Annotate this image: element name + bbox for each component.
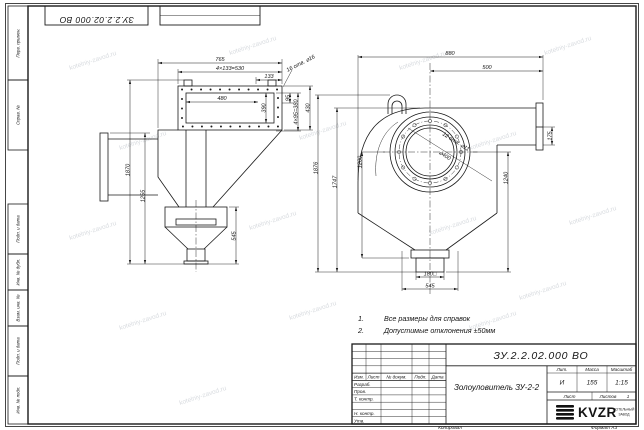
scale-label: Масштаб	[611, 367, 633, 372]
right-view-dimensions: 880 500 1876 1747 1200 1240 175 12 отв. …	[314, 51, 556, 291]
dim-390: 390	[262, 102, 268, 112]
col-docum: № докум.	[386, 375, 406, 380]
left-view-dimensions: 765 4×133=530 133 480 390 16 отв. ⌀16 95…	[110, 54, 317, 264]
dim-1255: 1255	[141, 189, 147, 202]
top-stamp-doc-number: ЗУ.2.2.02.000 ВО	[59, 15, 134, 25]
dim-4x95: 4×95=380	[294, 99, 300, 125]
watermark-text: kotelniy-zavod.ru	[568, 205, 617, 227]
watermark-text: kotelniy-zavod.ru	[518, 280, 567, 302]
company-line2: ЗАВОД	[618, 413, 630, 417]
dim-480: 480	[217, 96, 227, 102]
copied-label: Копировал	[438, 425, 462, 430]
note-1-text: Все размеры для справок	[384, 314, 471, 323]
sheets-label: Листов	[599, 394, 617, 399]
dim-545-left: 545	[232, 230, 238, 240]
lifting-hook	[388, 95, 406, 114]
dim-545-right: 545	[425, 284, 435, 290]
liter-value: И	[560, 380, 565, 387]
dim-880: 880	[445, 51, 455, 57]
dim-133: 133	[264, 74, 274, 80]
right-view-outline	[358, 63, 543, 294]
liter-label: Лит.	[556, 367, 568, 372]
logo-text: KVZR	[578, 405, 617, 420]
row-prov: Пров.	[354, 389, 366, 394]
margin-label-podp-data-2: Подп. и дата	[16, 337, 21, 365]
row-n-kontr: Н. контр.	[354, 411, 375, 416]
margin-labels: Перв. примен. Справ. № Подп. и дата Инв.…	[16, 28, 21, 413]
margin-label-inv-dubl: Инв. № дубл.	[16, 258, 21, 285]
dim-1240: 1240	[504, 171, 510, 184]
outlet-duct-flange	[536, 103, 543, 150]
row-razrab: Разраб.	[354, 382, 371, 387]
scroll-inner-curve	[376, 122, 398, 176]
watermark-text: kotelniy-zavod.ru	[468, 130, 517, 152]
dim-175: 175	[548, 130, 554, 140]
scale-value: 1:15	[615, 380, 628, 387]
watermark-text: kotelniy-zavod.ru	[543, 35, 592, 57]
watermark-text: kotelniy-zavod.ru	[118, 310, 167, 332]
sheet-frame	[6, 4, 639, 427]
margin-label-podp-data-1: Подп. и дата	[16, 215, 21, 243]
side-flange	[100, 133, 108, 201]
mass-value: 155	[587, 380, 598, 387]
watermark-text: kotelniy-zavod.ru	[298, 120, 347, 142]
company-line1: КОТЕЛЬНЫЙ	[614, 408, 635, 412]
dim-430: 430	[306, 102, 312, 112]
margin-label-sprav-no: Справ. №	[16, 105, 21, 125]
margin-label-inv-podl: Инв. № подл.	[16, 386, 21, 413]
col-izm: Изм.	[354, 375, 364, 380]
title-block: Изм. Лист № докум. Подп. Дата Разраб. Пр…	[352, 344, 636, 424]
mass-label: Масса	[585, 367, 599, 372]
right-view: 880 500 1876 1747 1200 1240 175 12 отв. …	[314, 51, 556, 294]
format-label: Формат А3	[591, 425, 618, 430]
logo-bars-icon	[556, 405, 574, 408]
col-data: Дата	[430, 375, 444, 380]
note-1-number: 1.	[358, 314, 364, 323]
margin-label-vzam-inv: Взам. инв. №	[16, 294, 21, 321]
watermark-text: kotelniy-zavod.ru	[248, 210, 297, 232]
col-list: Лист	[367, 375, 380, 380]
margin-label-perv-primen: Перв. примен.	[16, 28, 21, 57]
footer: Копировал Формат А3	[438, 425, 617, 430]
watermark-text: kotelniy-zavod.ru	[178, 385, 227, 407]
watermark-text: kotelniy-zavod.ru	[288, 300, 337, 322]
dim-4x133: 4×133=530	[216, 66, 245, 72]
watermark-text: kotelniy-zavod.ru	[118, 130, 167, 152]
left-view: 765 4×133=530 133 480 390 16 отв. ⌀16 95…	[100, 54, 317, 272]
row-t-kontr: Т. контр.	[354, 397, 374, 402]
dim-1876: 1876	[314, 161, 320, 174]
company-logo: KVZR КОТЕЛЬНЫЙ ЗАВОД	[556, 405, 635, 420]
dim-1200: 1200	[358, 155, 364, 168]
dim-1870: 1870	[126, 163, 132, 176]
dim-180: 180□	[424, 272, 437, 278]
top-stamp: ЗУ.2.2.02.000 ВО	[45, 6, 260, 25]
sheet-label: Лист	[563, 394, 576, 399]
watermark-text: kotelniy-zavod.ru	[228, 35, 277, 57]
note-2-number: 2.	[357, 326, 364, 335]
doc-title: Золоуловитель ЗУ-2-2	[454, 383, 540, 392]
note-2-text: Допустимые отклонения ±50мм	[383, 326, 495, 335]
sheet-border	[6, 4, 639, 427]
dim-1747: 1747	[333, 175, 339, 188]
dim-95: 95	[286, 94, 292, 101]
watermark-text: kotelniy-zavod.ru	[398, 50, 447, 72]
watermark-text: kotelniy-zavod.ru	[68, 220, 117, 242]
row-utv: Утв.	[354, 418, 364, 423]
drawing-canvas: kotelniy-zavod.ru kotelniy-zavod.ru kote…	[0, 0, 644, 430]
drawing-sheet: kotelniy-zavod.ru kotelniy-zavod.ru kote…	[0, 0, 644, 430]
watermark-text: kotelniy-zavod.ru	[428, 215, 477, 237]
watermark-text: kotelniy-zavod.ru	[68, 50, 117, 72]
dim-16-holes: 16 отв. ⌀16	[286, 54, 317, 74]
doc-number: ЗУ.2.2.02.000 ВО	[493, 350, 588, 362]
col-podp: Подп.	[414, 375, 426, 380]
sheets-value: 1	[627, 394, 630, 399]
dim-500: 500	[482, 65, 492, 71]
dim-765: 765	[215, 57, 225, 63]
